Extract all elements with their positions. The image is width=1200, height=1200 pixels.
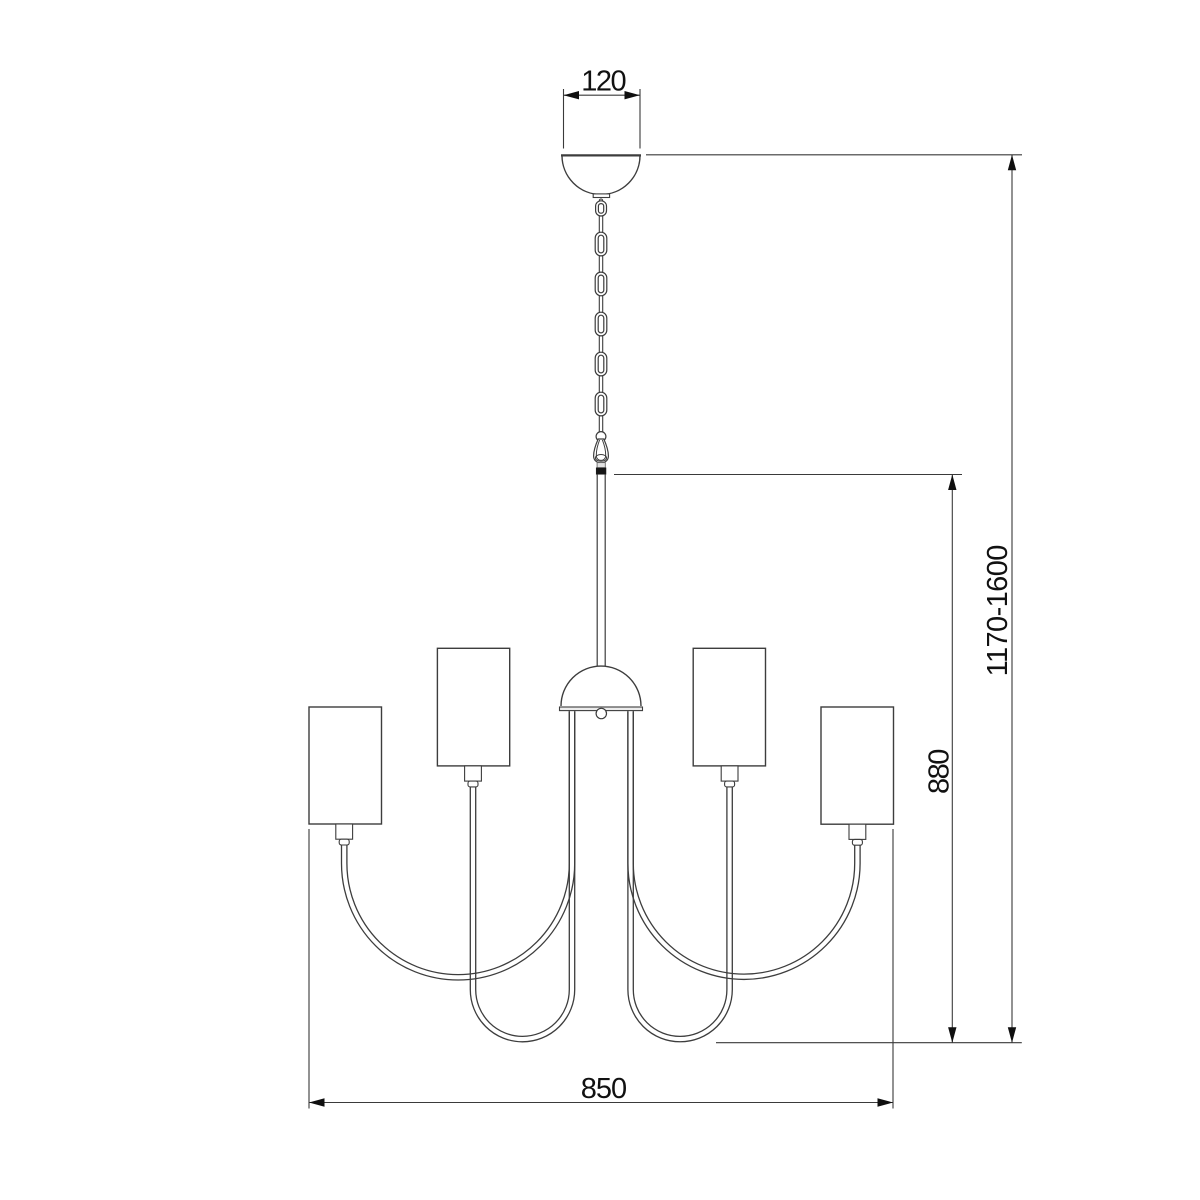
svg-text:1170-1600: 1170-1600 — [982, 545, 1014, 676]
svg-text:120: 120 — [581, 65, 625, 97]
svg-text:850: 850 — [581, 1073, 626, 1105]
svg-text:880: 880 — [923, 750, 955, 794]
